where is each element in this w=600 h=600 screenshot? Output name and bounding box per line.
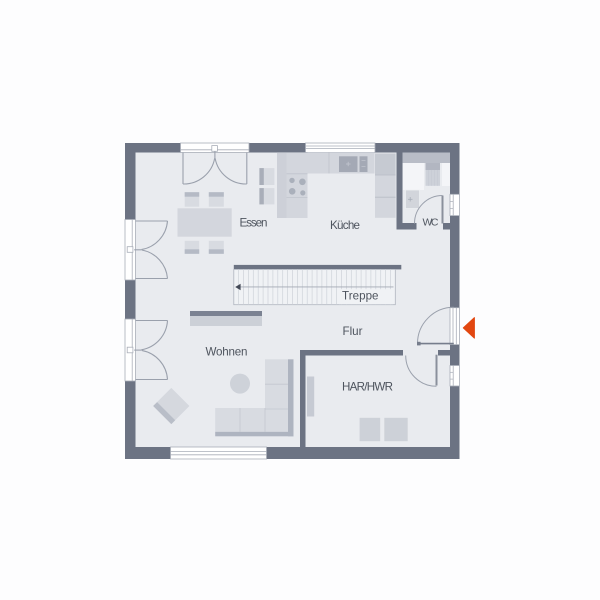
svg-text:WC: WC <box>423 217 439 229</box>
svg-text:Flur: Flur <box>343 325 363 338</box>
svg-text:Essen: Essen <box>240 217 268 230</box>
svg-text:Küche: Küche <box>330 219 360 232</box>
svg-text:HAR/HWR: HAR/HWR <box>342 381 393 394</box>
svg-text:Treppe: Treppe <box>342 290 379 303</box>
svg-text:Wohnen: Wohnen <box>206 346 248 359</box>
